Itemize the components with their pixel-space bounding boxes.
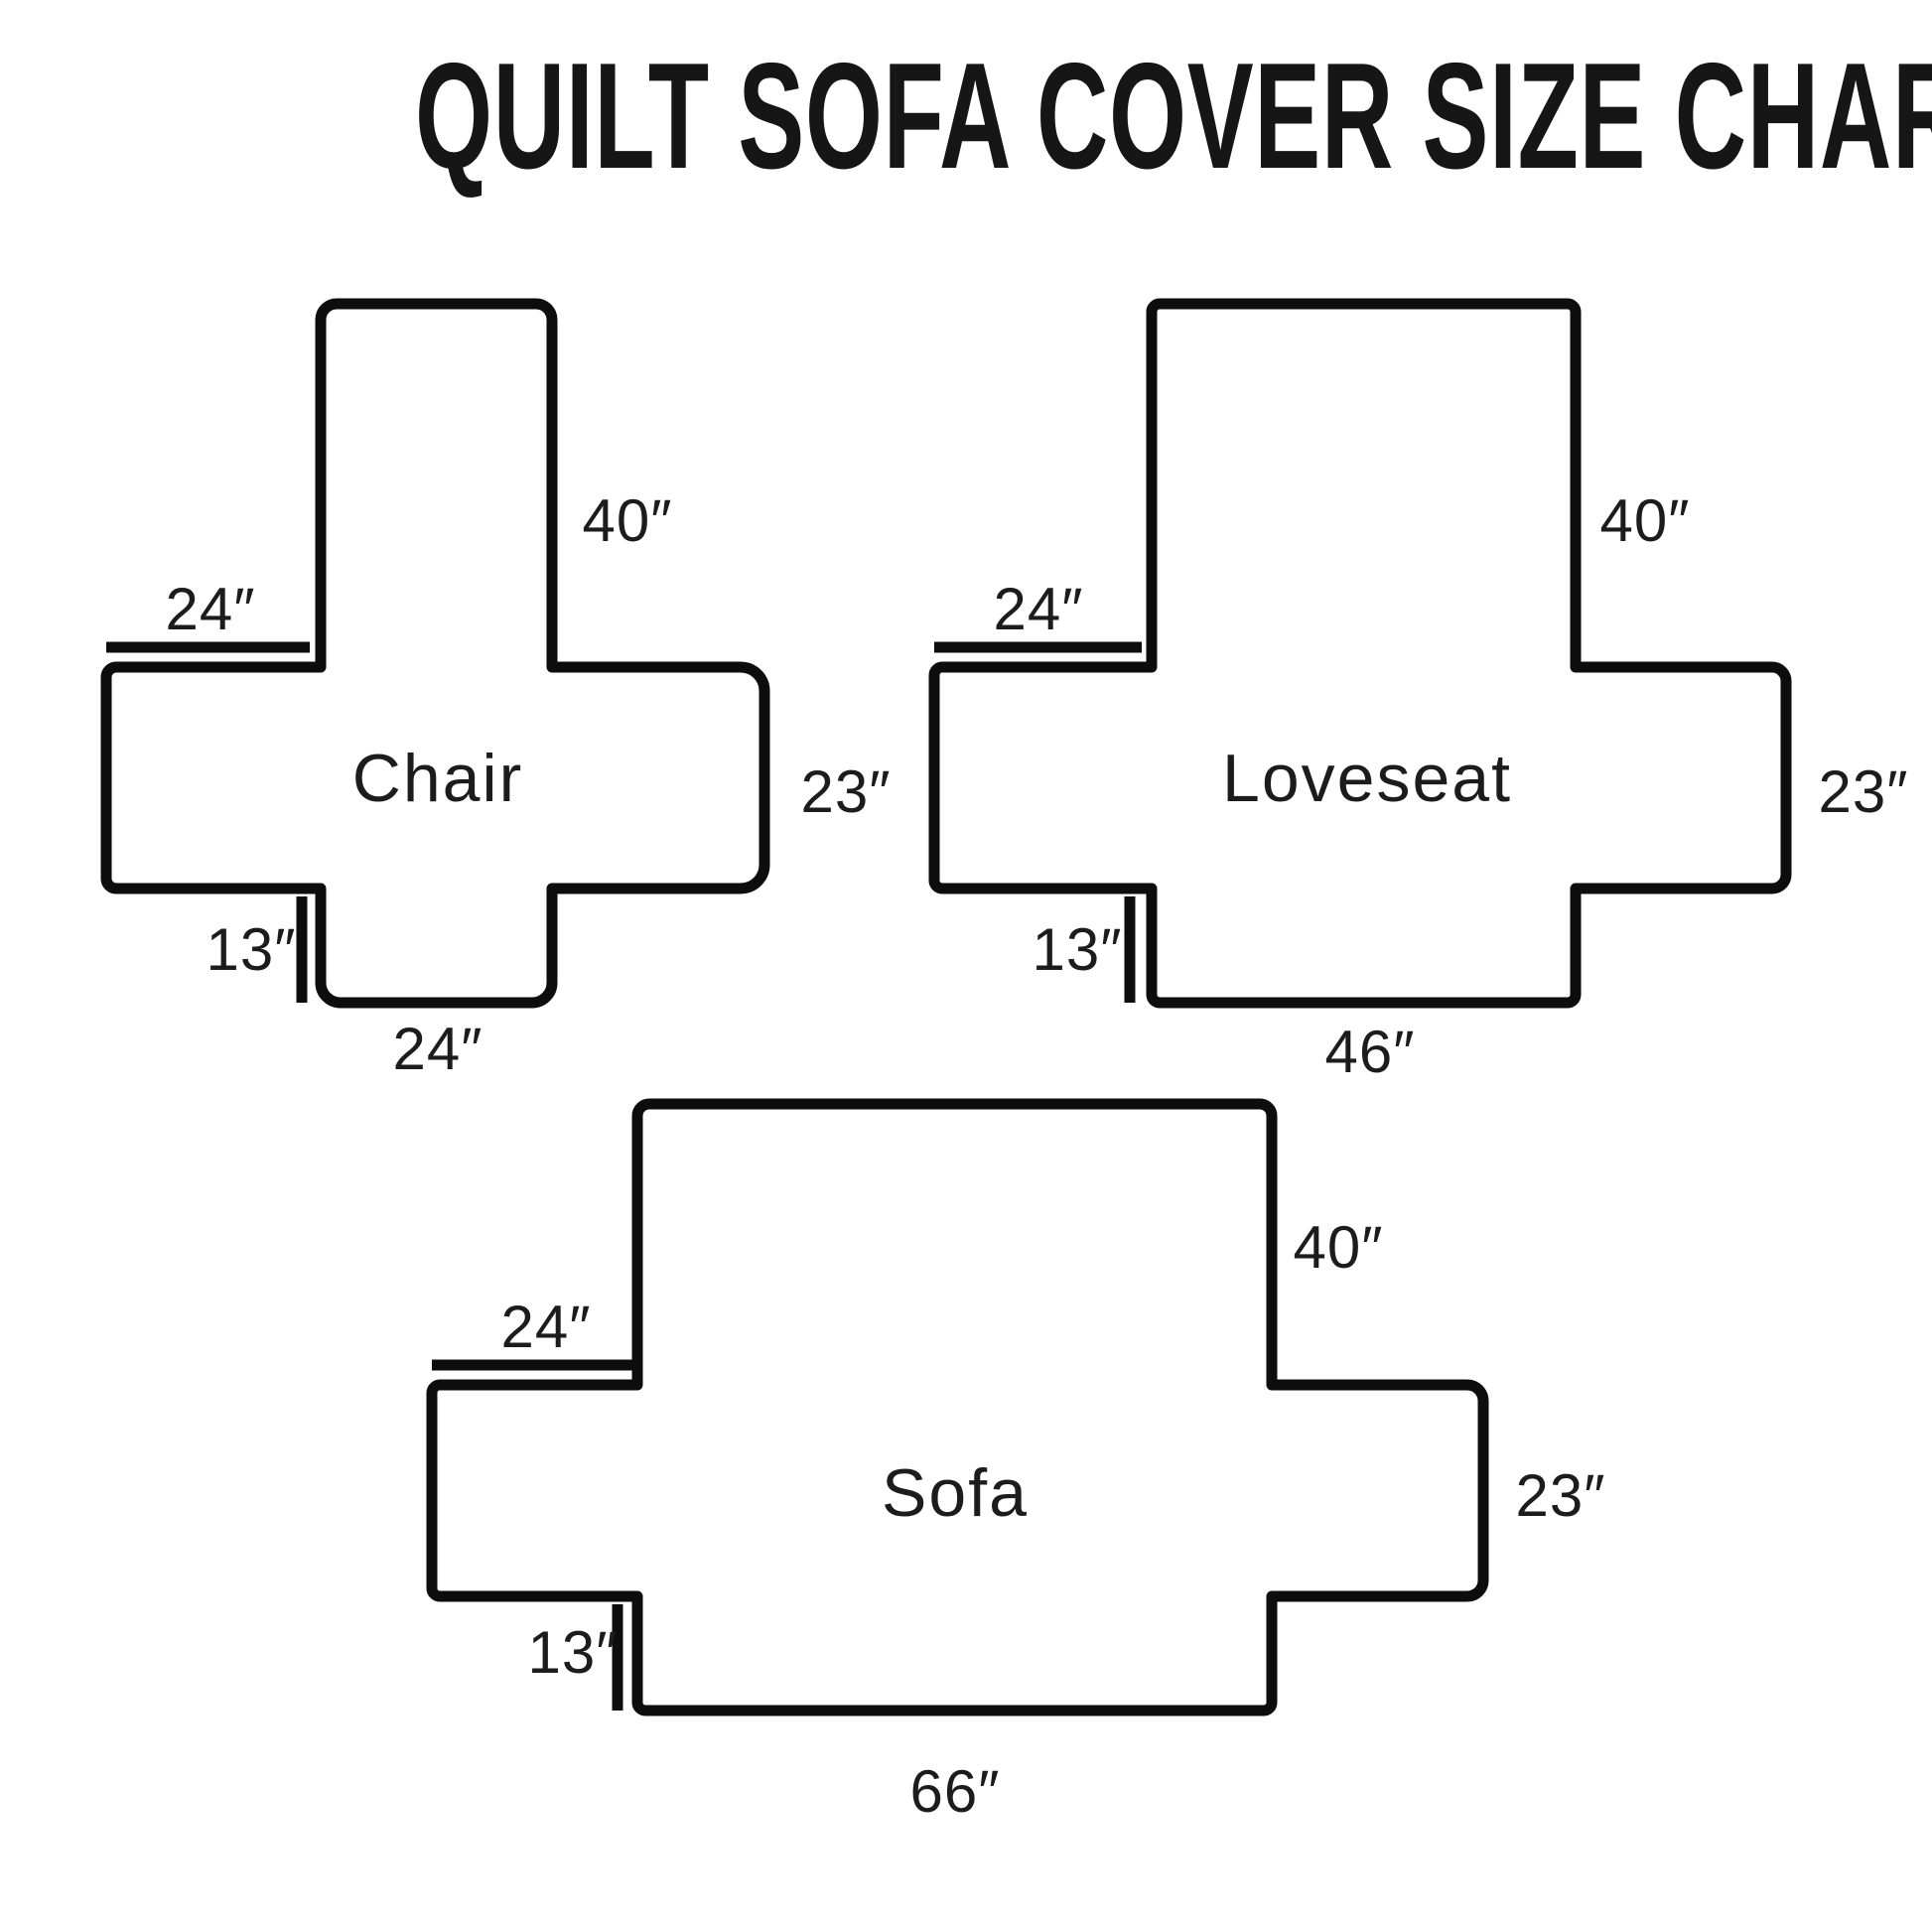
- loveseat-cover-outline: [934, 304, 1786, 1003]
- sofa-back-height-label: 40″: [1294, 1214, 1384, 1281]
- chair-back-height-label: 40″: [583, 487, 673, 554]
- loveseat-flap-height-label: 13″: [1033, 916, 1123, 983]
- loveseat-name-label: Loveseat: [1222, 741, 1512, 816]
- loveseat-back-height-label: 40″: [1600, 487, 1691, 554]
- sofa-flap-height-label: 13″: [528, 1619, 619, 1686]
- size-chart-page: QUILT SOFA COVER SIZE CHART Chair40″24″2…: [0, 0, 1932, 1918]
- sofa-arm-top-width-label: 24″: [501, 1294, 592, 1360]
- loveseat-bottom-width-label: 46″: [1325, 1019, 1416, 1085]
- diagram-canvas: Chair40″24″23″13″24″Loveseat40″24″23″13″…: [0, 0, 1932, 1918]
- chair-bottom-width-label: 24″: [393, 1016, 483, 1082]
- chair-flap-height-label: 13″: [207, 916, 297, 983]
- sofa-bottom-width-label: 66″: [910, 1758, 1001, 1825]
- chair-arm-top-width-label: 24″: [166, 576, 256, 642]
- loveseat-arm-top-width-label: 24″: [994, 576, 1084, 642]
- loveseat-seat-side-height-label: 23″: [1819, 758, 1909, 825]
- chair-name-label: Chair: [352, 741, 524, 816]
- chair-seat-side-height-label: 23″: [801, 758, 892, 825]
- sofa-name-label: Sofa: [882, 1455, 1029, 1531]
- chair-cover-outline: [106, 304, 764, 1003]
- sofa-seat-side-height-label: 23″: [1516, 1462, 1606, 1529]
